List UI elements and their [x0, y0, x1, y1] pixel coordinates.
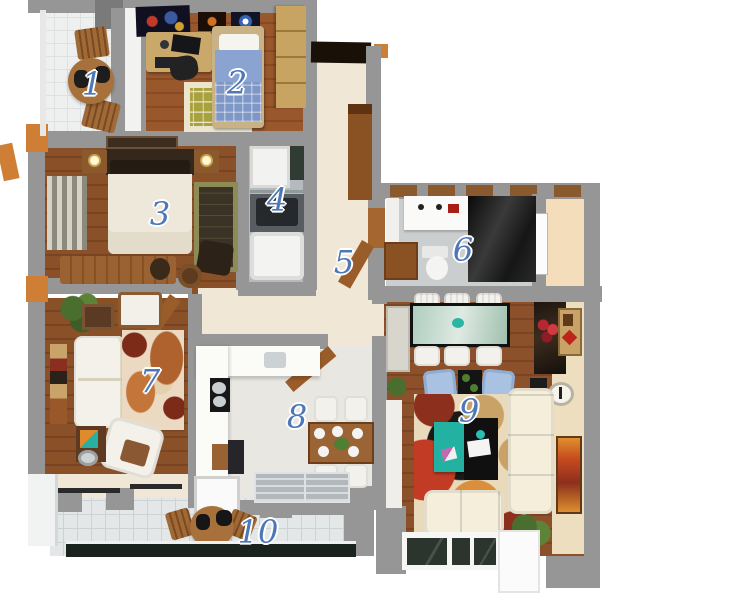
door-track	[130, 484, 182, 489]
room-label-8: 8	[287, 398, 307, 436]
wall	[372, 336, 387, 510]
dish	[78, 450, 98, 466]
kitchen-sink	[264, 352, 286, 368]
stool	[178, 264, 202, 288]
decor-box	[80, 430, 98, 448]
plant-small	[388, 376, 406, 400]
shoe-cabinet	[348, 104, 372, 200]
placemat	[216, 510, 232, 526]
pot	[212, 382, 226, 394]
balcony-chair	[74, 26, 110, 60]
lamp	[88, 154, 101, 167]
floor-mat	[256, 474, 304, 501]
plant-pot	[462, 374, 470, 382]
cup	[476, 430, 485, 439]
doorway-frame	[368, 208, 385, 250]
room-label-10: 10	[238, 513, 279, 551]
shower-cabin	[468, 196, 536, 282]
floor-plan-image: 1 2 3 4 5 6 7 8 9 10	[0, 0, 748, 593]
sofa-cushion-line	[78, 378, 122, 381]
plant-pot	[470, 384, 478, 392]
wall	[238, 282, 316, 296]
sofa	[508, 388, 554, 514]
glass-railing	[66, 544, 356, 557]
wardrobe	[276, 6, 306, 108]
wardrobe	[47, 176, 87, 250]
sofa	[74, 336, 126, 428]
entrance-door	[311, 41, 371, 63]
sofa	[424, 490, 504, 536]
side-table	[82, 304, 114, 330]
dining-chair	[314, 396, 338, 422]
wall	[372, 294, 387, 304]
room-label-1: 1	[82, 65, 102, 103]
oven	[228, 440, 244, 474]
wall	[303, 140, 317, 290]
vanity-item	[448, 204, 459, 213]
wall	[546, 556, 600, 588]
papers	[467, 439, 491, 458]
dining-chair	[476, 346, 502, 366]
plate	[314, 428, 325, 439]
window-glass	[452, 538, 470, 565]
art-detail	[563, 314, 573, 326]
room-label-2: 2	[227, 64, 247, 102]
floor-mat	[306, 474, 348, 501]
plate	[332, 426, 343, 437]
wall	[28, 0, 98, 13]
faucet	[418, 204, 424, 210]
wall-art	[50, 344, 67, 424]
tall-cabinet	[386, 400, 402, 508]
door-track	[56, 488, 120, 493]
window-glass	[407, 538, 447, 565]
room-label-7: 7	[140, 362, 160, 400]
wall	[584, 194, 600, 574]
placemat	[196, 514, 210, 530]
dining-chair	[344, 396, 368, 422]
plate	[348, 446, 359, 457]
walkway	[498, 530, 540, 593]
room-label-4: 4	[267, 181, 287, 219]
plate	[318, 446, 329, 457]
terrace-column	[28, 474, 58, 546]
bathtub	[250, 232, 304, 280]
bathroom-door-face	[386, 198, 399, 244]
fruit-bowl	[334, 438, 349, 450]
toilet	[426, 256, 448, 280]
wall-art-tall	[556, 436, 582, 514]
wall-accent	[26, 276, 48, 302]
room-label-9: 9	[459, 392, 479, 430]
pot	[213, 396, 226, 407]
ottoman	[118, 292, 162, 328]
shower-unit	[290, 146, 304, 180]
plate	[352, 428, 363, 439]
centerpiece	[452, 318, 464, 328]
wall	[28, 131, 45, 479]
desk-item	[160, 40, 169, 49]
window-lintel	[554, 185, 581, 197]
lamp	[200, 154, 213, 167]
sideboard	[386, 306, 410, 372]
dining-chair	[414, 346, 440, 366]
faucet	[436, 204, 442, 210]
room-label-3: 3	[150, 195, 170, 233]
window-glass	[474, 538, 496, 565]
wall-picture	[106, 136, 178, 149]
balcony-railing	[40, 10, 46, 136]
dining-chair	[444, 346, 470, 366]
room-label-5: 5	[334, 243, 354, 281]
flowers	[536, 316, 560, 346]
dresser	[384, 242, 418, 280]
clock-hand	[559, 387, 562, 399]
roof-edge	[0, 143, 20, 182]
room-label-6: 6	[453, 231, 473, 269]
bench-item	[150, 258, 170, 280]
